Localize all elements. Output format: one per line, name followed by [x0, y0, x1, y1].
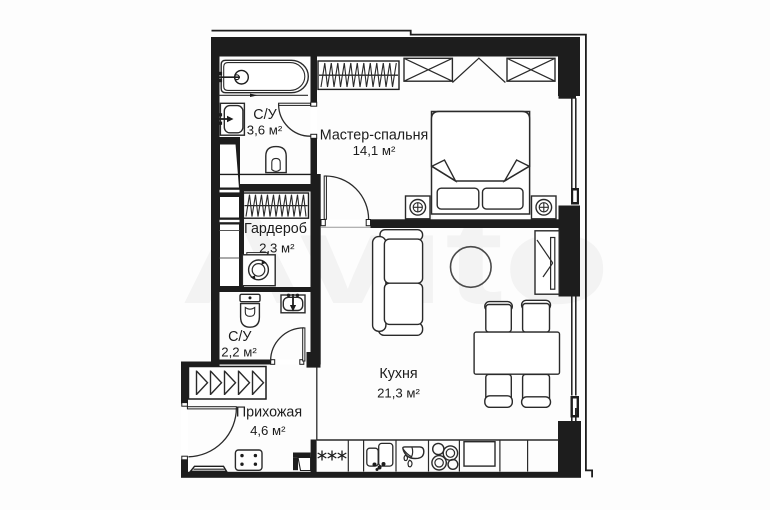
svg-text:4,6 м²: 4,6 м² — [250, 423, 286, 438]
svg-text:14,1 м²: 14,1 м² — [353, 143, 396, 158]
svg-text:Кухня: Кухня — [379, 366, 417, 382]
svg-text:21,3 м²: 21,3 м² — [377, 386, 420, 401]
svg-text:С/У: С/У — [253, 107, 277, 123]
svg-text:3,6 м²: 3,6 м² — [247, 123, 283, 138]
svg-text:2,2 м²: 2,2 м² — [221, 345, 257, 360]
svg-text:Мастер-спальня: Мастер-спальня — [320, 128, 429, 144]
svg-text:Гардероб: Гардероб — [244, 221, 307, 237]
svg-text:2,3 м²: 2,3 м² — [259, 241, 295, 256]
svg-text:С/У: С/У — [228, 329, 252, 345]
svg-text:Прихожая: Прихожая — [236, 405, 302, 421]
